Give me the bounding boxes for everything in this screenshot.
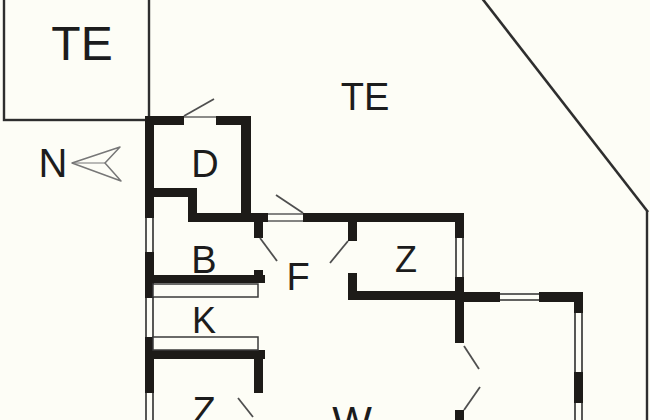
k-counter-north — [153, 284, 258, 297]
door-gap-d-entrance — [184, 114, 216, 127]
floor-plan-canvas: N TE TE D B F Z K Z W — [0, 0, 650, 420]
room-label-w: W — [332, 398, 372, 420]
wall-z-south-top — [145, 350, 265, 359]
room-label-f: F — [286, 256, 309, 298]
floor-plan: N TE TE D B F Z K Z W — [0, 0, 650, 420]
window-gap-z-east — [453, 238, 466, 277]
window-gap-right-room-1 — [572, 313, 585, 372]
room-label-z-east: Z — [395, 239, 417, 280]
room-label-z-south: Z — [192, 390, 215, 420]
window-gap-right-room-2 — [572, 403, 585, 420]
north-label: N — [39, 141, 68, 185]
room-label-terrace-upper: TE — [51, 17, 112, 70]
wall-z-east-bottom — [348, 291, 464, 300]
door-gap-w-double — [453, 343, 466, 410]
wall-long-middle — [188, 213, 464, 222]
wall-d-inner-vertical — [188, 188, 197, 222]
door-gap-z-south — [252, 393, 265, 420]
room-label-b: B — [191, 239, 216, 281]
door-gap-f-entrance — [268, 211, 303, 224]
wall-exterior-left — [145, 116, 154, 420]
window-gap-k — [143, 298, 156, 337]
room-label-k: K — [192, 300, 216, 341]
room-label-d: D — [191, 143, 218, 185]
door-gap-z-east — [346, 241, 359, 273]
room-label-terrace-main: TE — [341, 76, 390, 118]
wall-d-right — [241, 116, 251, 222]
window-gap-b — [143, 218, 156, 252]
window-gap-right-room-top — [500, 290, 539, 304]
window-gap-z-south — [143, 393, 156, 420]
